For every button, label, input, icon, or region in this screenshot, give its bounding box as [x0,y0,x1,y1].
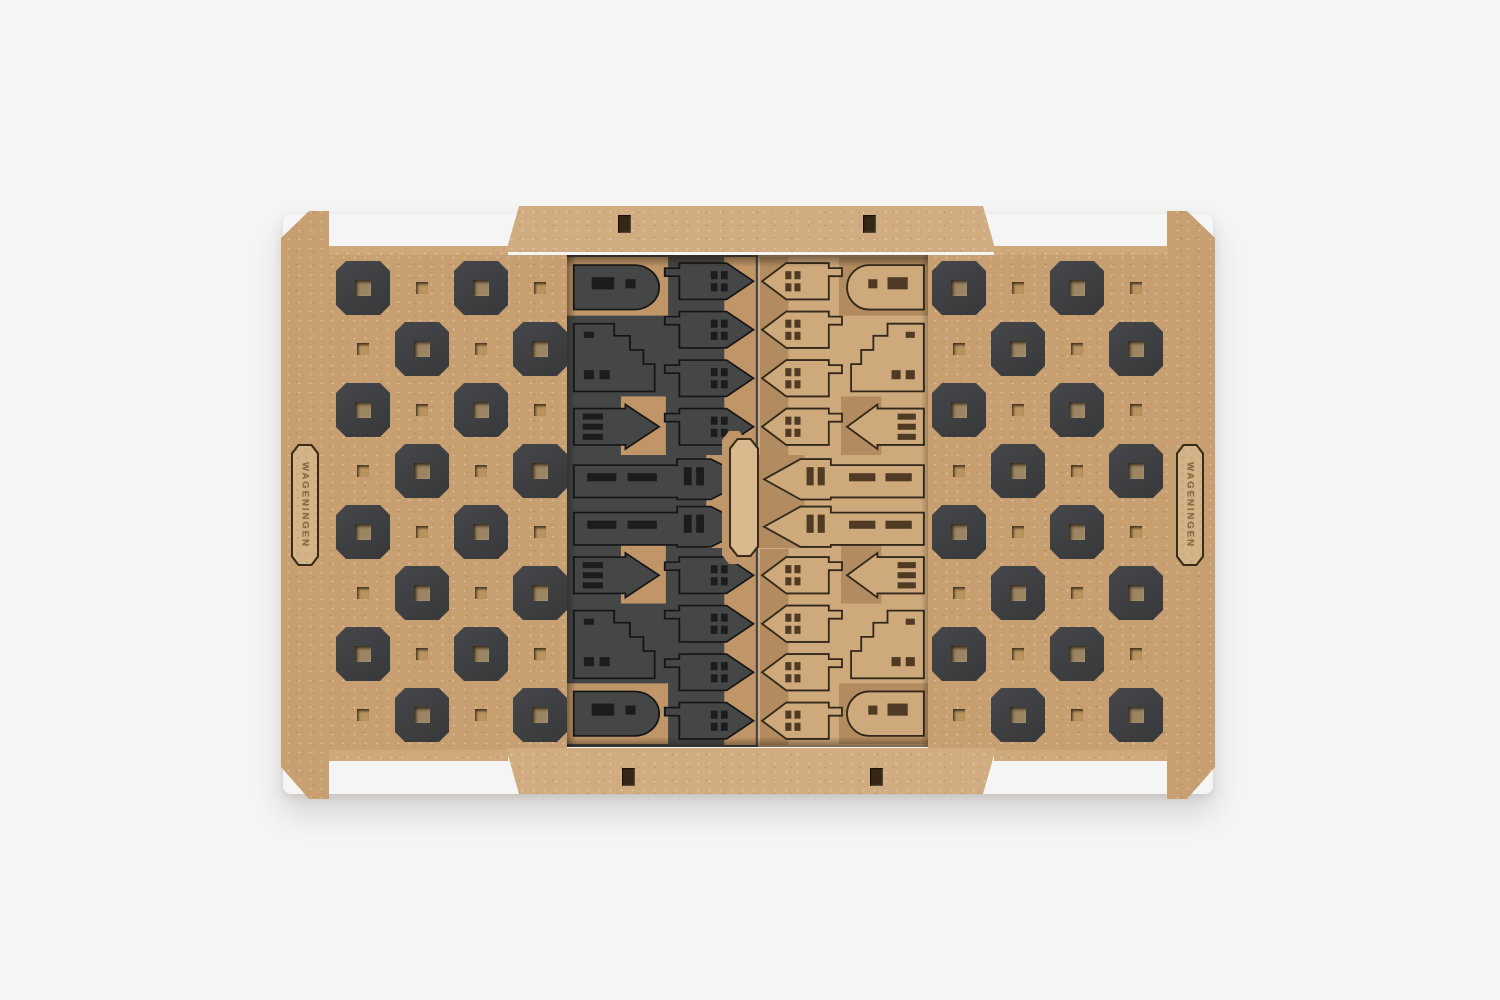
light-square-hole [1071,587,1083,599]
light-square-hole [357,709,369,721]
square-centre-hole [414,341,430,357]
square-centre-hole [532,585,548,601]
square-centre-hole [532,463,548,479]
board-square-dark [1109,444,1163,498]
light-queen-piece [764,459,924,499]
board-square-dark [336,505,390,559]
dark-rook-piece [574,265,659,309]
wageningen-text-left: WAGENINGEN [300,462,311,548]
wageningen-text-right: WAGENINGEN [1185,462,1196,548]
board-square-dark [991,566,1045,620]
square-centre-hole [1010,585,1026,601]
light-square-hole [1012,648,1024,660]
light-square-hole [1130,648,1142,660]
light-square-hole [416,282,428,294]
square-centre-hole [1010,707,1026,723]
square-centre-hole [532,707,548,723]
right-board-wing [928,205,1215,800]
centre-handle-face [731,440,757,555]
light-square-hole [357,465,369,477]
dark-rook-piece [574,691,659,735]
board-square-dark [932,505,986,559]
board-square-dark [454,383,508,437]
square-centre-hole [951,402,967,418]
light-square-hole [534,404,546,416]
light-square-hole [953,465,965,477]
square-centre-hole [473,524,489,540]
square-centre-hole [473,646,489,662]
light-square-hole [1012,526,1024,538]
square-centre-hole [1069,524,1085,540]
board-square-dark [336,627,390,681]
board-square-dark [513,566,567,620]
square-centre-hole [951,524,967,540]
light-square-hole [475,465,487,477]
board-square-dark [395,566,449,620]
light-square-hole [357,587,369,599]
left-board-wing [281,205,567,800]
light-square-hole [1012,404,1024,416]
light-square-hole [1130,282,1142,294]
square-centre-hole [355,646,371,662]
light-rook-piece [847,691,924,735]
square-centre-hole [414,707,430,723]
light-square-hole [1130,404,1142,416]
square-centre-hole [414,585,430,601]
board-square-dark [932,627,986,681]
light-square-hole [1071,343,1083,355]
square-centre-hole [1010,463,1026,479]
light-rook-piece [847,265,924,309]
square-centre-hole [1010,341,1026,357]
board-square-dark [513,322,567,376]
rail-joint-slot [870,768,883,786]
light-square-hole [953,709,965,721]
board-square-dark [395,444,449,498]
light-square-hole [1071,465,1083,477]
board-square-dark [395,688,449,742]
square-centre-hole [473,280,489,296]
rail-joint-slot [622,768,635,786]
board-square-dark [454,505,508,559]
square-centre-hole [951,280,967,296]
light-square-hole [953,343,965,355]
light-square-hole [475,709,487,721]
board-square-dark [1109,322,1163,376]
board-square-dark [513,688,567,742]
light-square-hole [1130,526,1142,538]
board-square-dark [932,383,986,437]
board-square-dark [1050,261,1104,315]
light-square-hole [1012,282,1024,294]
square-centre-hole [473,402,489,418]
centre-handle-lozenge [729,438,759,557]
board-square-dark [513,444,567,498]
bottom-rail [504,747,998,795]
square-centre-hole [1069,402,1085,418]
square-centre-hole [1128,463,1144,479]
rail-joint-slot [863,215,876,233]
board-square-dark [454,261,508,315]
square-centre-hole [1069,646,1085,662]
wageningen-engraving-left: WAGENINGEN [291,444,319,566]
board-square-dark [932,261,986,315]
board-square-dark [1050,383,1104,437]
light-square-hole [475,587,487,599]
rail-joint-slot [618,215,631,233]
square-centre-hole [355,280,371,296]
square-centre-hole [1128,585,1144,601]
light-square-hole [534,648,546,660]
top-rail [504,205,998,253]
board-square-dark [991,688,1045,742]
light-square-hole [416,526,428,538]
board-square-dark [991,322,1045,376]
light-square-hole [534,282,546,294]
square-centre-hole [1069,280,1085,296]
light-square-hole [534,526,546,538]
square-centre-hole [414,463,430,479]
board-square-dark [1050,505,1104,559]
light-square-hole [953,587,965,599]
board-square-dark [1050,627,1104,681]
board-square-dark [336,261,390,315]
light-square-hole [475,343,487,355]
square-centre-hole [355,402,371,418]
board-square-dark [1109,688,1163,742]
square-centre-hole [532,341,548,357]
light-square-hole [357,343,369,355]
board-square-dark [454,627,508,681]
square-centre-hole [1128,707,1144,723]
square-centre-hole [1128,341,1144,357]
square-centre-hole [951,646,967,662]
wageningen-engraving-right: WAGENINGEN [1176,444,1204,566]
light-king-piece [764,507,924,547]
square-centre-hole [355,524,371,540]
board-square-dark [336,383,390,437]
board-square-dark [395,322,449,376]
light-square-hole [1071,709,1083,721]
light-square-hole [416,648,428,660]
board-square-dark [1109,566,1163,620]
light-piece-sheet [758,255,930,747]
light-square-hole [416,404,428,416]
board-square-dark [991,444,1045,498]
